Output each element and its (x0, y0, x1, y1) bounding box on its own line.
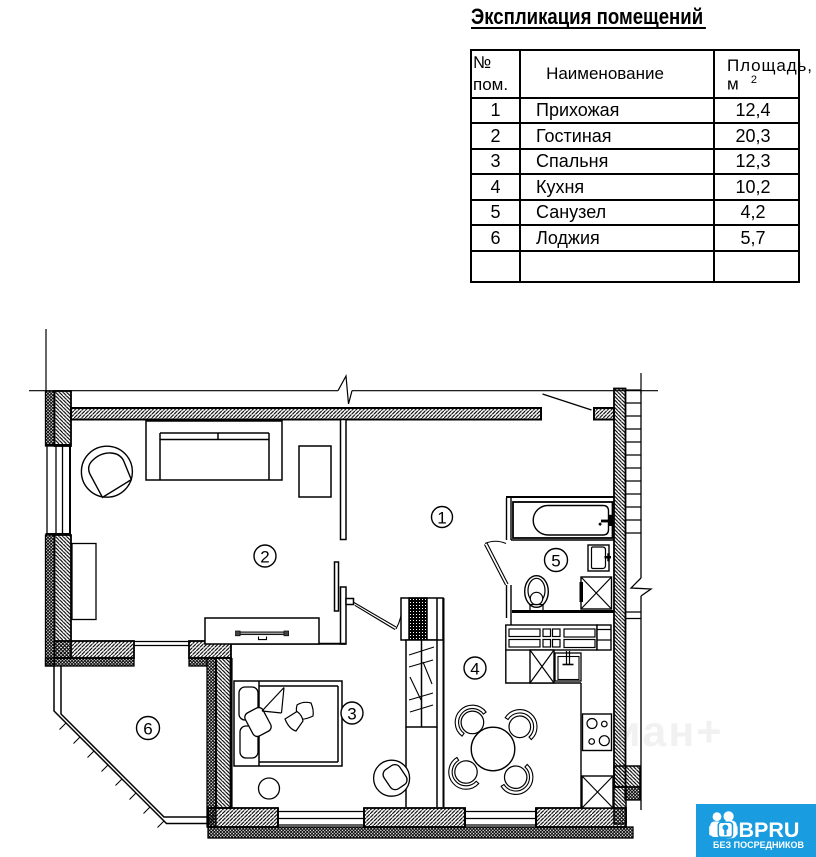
svg-text:1: 1 (437, 509, 446, 528)
svg-text:БЕЗ ПОСРЕДНИКОВ: БЕЗ ПОСРЕДНИКОВ (713, 840, 804, 850)
svg-text:4: 4 (470, 660, 479, 679)
svg-text:BPRU: BPRU (739, 818, 800, 842)
svg-text:3: 3 (347, 705, 356, 724)
svg-text:6: 6 (143, 720, 152, 739)
svg-text:5: 5 (551, 552, 560, 571)
svg-text:2: 2 (260, 548, 269, 567)
